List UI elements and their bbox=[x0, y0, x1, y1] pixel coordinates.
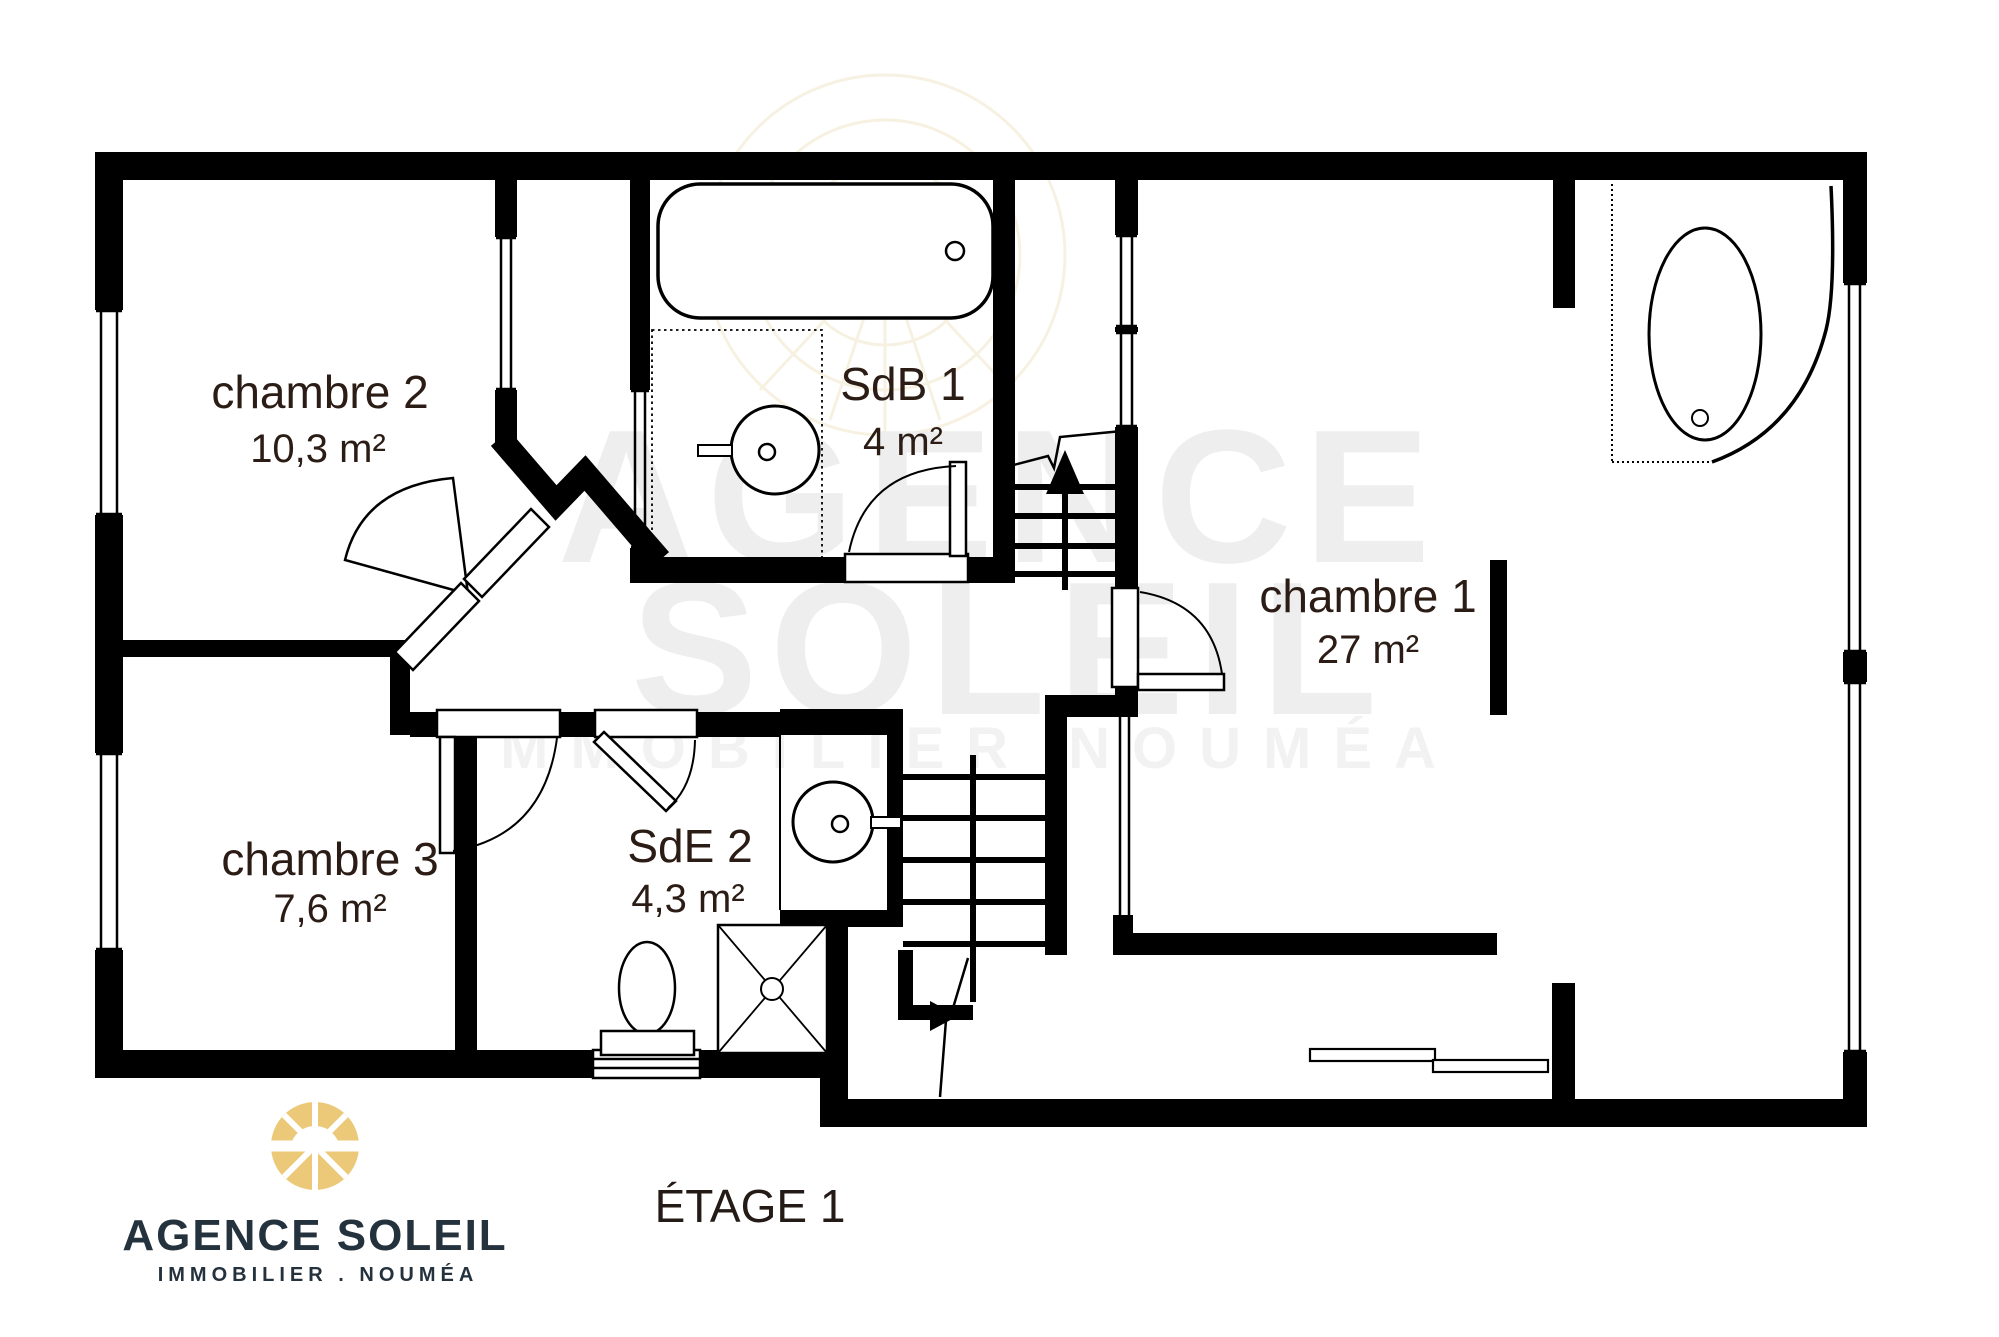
room-label-chambre1: chambre 1 bbox=[1259, 570, 1476, 622]
room-label-chambre3: chambre 3 bbox=[221, 833, 438, 885]
staircase-down-icon bbox=[903, 755, 1045, 1097]
room-area-chambre2: 10,3 m² bbox=[250, 427, 386, 471]
door-swing-icon bbox=[437, 710, 560, 853]
agency-logo: AGENCE SOLEIL IMMOBILIER . NOUMÉA bbox=[122, 1102, 507, 1286]
sliding-window-icon bbox=[1310, 1049, 1548, 1072]
toilet-icon bbox=[601, 942, 694, 1055]
room-area-chambre1: 27 m² bbox=[1317, 628, 1419, 672]
sun-icon bbox=[267, 1102, 363, 1190]
room-label-sdb1: SdB 1 bbox=[840, 358, 965, 410]
window-icon bbox=[496, 237, 516, 390]
shower-icon bbox=[718, 925, 827, 1053]
agency-name: AGENCE SOLEIL bbox=[122, 1211, 507, 1260]
window-icon bbox=[95, 753, 123, 950]
bathtub-icon bbox=[658, 184, 993, 318]
window-icon bbox=[95, 310, 123, 515]
room-label-sde2: SdE 2 bbox=[627, 820, 752, 872]
room-area-sdb1: 4 m² bbox=[863, 420, 943, 464]
room-label-chambre2: chambre 2 bbox=[211, 366, 428, 418]
floor-title: ÉTAGE 1 bbox=[655, 1180, 846, 1232]
window-icon bbox=[1843, 283, 1867, 652]
corner-bathtub-icon bbox=[1612, 184, 1833, 462]
agency-tagline: IMMOBILIER . NOUMÉA bbox=[158, 1263, 479, 1286]
room-area-chambre3: 7,6 m² bbox=[273, 887, 386, 931]
room-area-sde2: 4,3 m² bbox=[631, 877, 744, 921]
floor-plan-svg: AGENCE SOLEIL IMMOBILIER NOUMÉA bbox=[0, 0, 1999, 1337]
floor-plan-page: AGENCE SOLEIL IMMOBILIER NOUMÉA bbox=[0, 0, 1999, 1337]
window-icon bbox=[1116, 235, 1137, 327]
window-icon bbox=[1843, 682, 1867, 1052]
